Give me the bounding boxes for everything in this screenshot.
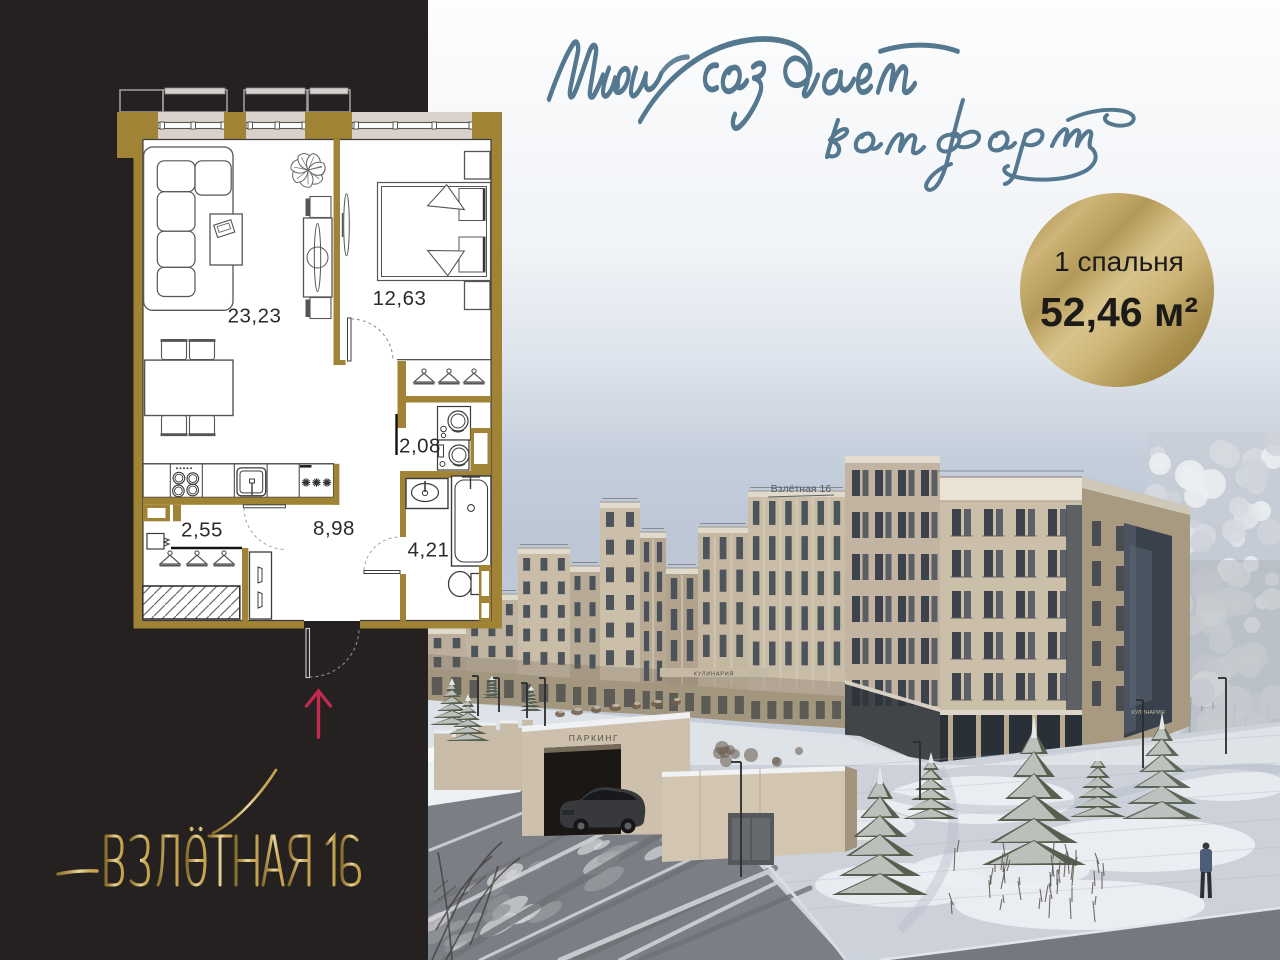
- svg-text:52,46 м²: 52,46 м²: [1040, 289, 1198, 335]
- svg-text:4,21: 4,21: [408, 539, 450, 562]
- svg-text:2,08: 2,08: [399, 435, 441, 458]
- svg-text:23,23: 23,23: [228, 305, 282, 328]
- svg-text:КУЛИНАРИЯ: КУЛИНАРИЯ: [694, 672, 735, 678]
- svg-text:1 спальня: 1 спальня: [1054, 246, 1184, 277]
- svg-text:ПАРКИНГ: ПАРКИНГ: [569, 733, 619, 743]
- svg-text:КУЛИНАРИЯ: КУЛИНАРИЯ: [1131, 710, 1164, 716]
- svg-text:2,55: 2,55: [181, 519, 223, 542]
- svg-text:12,63: 12,63: [373, 287, 427, 310]
- svg-text:8,98: 8,98: [313, 517, 355, 540]
- svg-text:Взлётная 16: Взлётная 16: [771, 483, 832, 495]
